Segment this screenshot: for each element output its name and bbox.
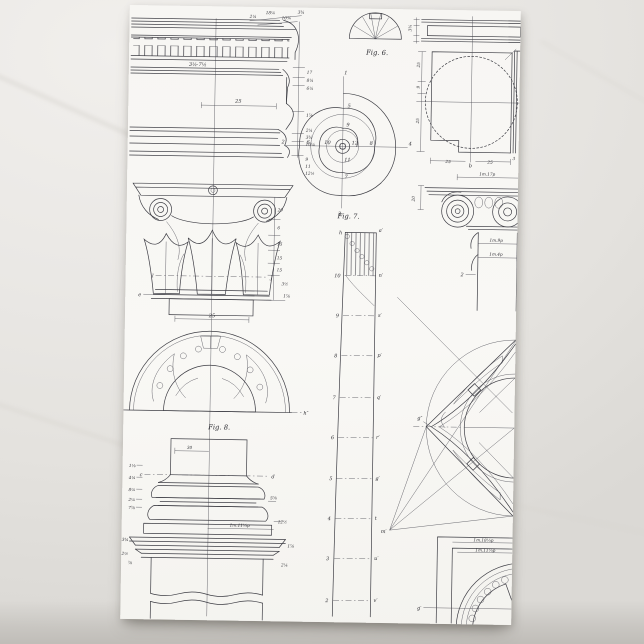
column-base-elevation: 30 c d 1⅛ 4¼ 8¼ 2¼ 7⅞ 5⅝ 12½ 1m. bbox=[120, 438, 296, 621]
dim: 25 bbox=[486, 160, 493, 165]
dim: 1m.18⅓p bbox=[473, 537, 493, 542]
dim: 2½ bbox=[120, 551, 128, 556]
entablature-dimension-stack: 17 8¼ 6¼ 1⅞ 2¼ 3¾ 10¼ 9 11 12½ bbox=[291, 22, 317, 176]
pt: 2 bbox=[280, 139, 284, 145]
rung-letter: r′ bbox=[376, 435, 380, 441]
entasis-diagram: h a′ 10 n′ 9 s′ 8 p′ 7 q′ bbox=[324, 227, 385, 617]
ionic-neck-dim: 1m.9p bbox=[478, 237, 517, 247]
rung-letter: t bbox=[375, 516, 378, 522]
label: g″ bbox=[417, 416, 422, 422]
edge-label-e: e bbox=[138, 292, 165, 298]
dim: 15 bbox=[277, 241, 283, 246]
rung-num: 4 bbox=[327, 516, 331, 522]
guide-left: l bbox=[152, 273, 154, 279]
dim: 8¼ bbox=[307, 78, 314, 83]
capital-guide-line: l J bbox=[152, 273, 274, 281]
rung-letter: u′ bbox=[374, 556, 379, 562]
dim: 3¾ bbox=[122, 537, 129, 542]
pt: 7 bbox=[345, 174, 349, 180]
pt: 1 bbox=[344, 70, 347, 76]
architecture-engraving: 3½·7½ 25 17 8¼ 6¼ 1⅞ 2¼ 3¾ 10¼ 9 11 12½ bbox=[120, 5, 521, 625]
dim: 20 bbox=[411, 196, 416, 203]
corner-label: g″ bbox=[417, 416, 431, 427]
fig6-diagram: Fig. 6. bbox=[349, 12, 402, 57]
rung-num: 2 bbox=[324, 598, 328, 604]
corinthian-capital-plan: m′ g″ bbox=[381, 297, 521, 538]
rung-letter: v′ bbox=[373, 598, 378, 604]
dim: 2¼ bbox=[127, 497, 135, 502]
fig7-label: Fig. 7. bbox=[336, 212, 359, 220]
fig8-label: Fig. 8. bbox=[207, 423, 230, 431]
pt: 11 bbox=[344, 157, 350, 163]
ionic-height-dim: 20 bbox=[411, 185, 424, 209]
dim: 9 bbox=[416, 85, 421, 88]
dim: ⅞ bbox=[128, 560, 133, 565]
guide-right: J bbox=[270, 275, 274, 281]
rung-num: 7 bbox=[332, 395, 336, 401]
dim: 25 bbox=[416, 62, 421, 69]
label: g′ bbox=[417, 606, 422, 612]
top-right-label: a′ bbox=[379, 228, 384, 234]
dim: 1m.9p bbox=[490, 238, 504, 243]
base-module-dim: 1m.11⅓p bbox=[208, 522, 274, 529]
dim: 17 bbox=[307, 70, 313, 75]
dim: 2¼ bbox=[305, 128, 313, 133]
frieze-width: 25 bbox=[234, 99, 241, 105]
soffit-top-dims: 3¾ bbox=[407, 17, 419, 43]
rung-num: 9 bbox=[336, 313, 340, 319]
capital-volute-left bbox=[138, 195, 171, 221]
soffit-plan: 3¾ 25 9 25 25 b 25 3 bbox=[405, 15, 520, 170]
construction-lines: m′ bbox=[381, 297, 517, 537]
ground-label: h″ bbox=[303, 411, 308, 417]
dim: 1⅛ bbox=[129, 463, 137, 468]
top-left-label: h bbox=[339, 230, 342, 236]
dim: 25 bbox=[444, 159, 451, 164]
dim: 12½ bbox=[305, 171, 314, 176]
fig7-volute-spiral: 1 2 3 4 5 6 7 8 9 10 11 12 Fig. 7. bbox=[279, 69, 413, 221]
dim: 6¼ bbox=[307, 86, 314, 91]
pt: 12 bbox=[352, 140, 358, 146]
dim: 1⅞ bbox=[287, 544, 295, 549]
rung-num: 5 bbox=[329, 476, 332, 482]
dim: 2¼ bbox=[280, 562, 288, 567]
stationery-paper: 3½·7½ 25 17 8¼ 6¼ 1⅞ 2¼ 3¾ 10¼ 9 11 12½ bbox=[120, 5, 521, 625]
dim: 12½ bbox=[278, 519, 287, 524]
dentil-band bbox=[133, 37, 289, 58]
right-label: d bbox=[271, 474, 274, 480]
dim: 9 bbox=[305, 157, 308, 162]
label: 2 bbox=[459, 272, 463, 278]
dim: 6 bbox=[277, 225, 280, 230]
dim: 2¼ bbox=[249, 14, 257, 19]
ionic-capital-elevation: 1m.17p 20 1m.9p 1m.4p bbox=[409, 170, 521, 311]
dim: 20 bbox=[277, 207, 284, 212]
flute-band bbox=[345, 232, 376, 275]
marble-vein bbox=[540, 40, 644, 122]
pt: 4 bbox=[408, 141, 412, 147]
base-plan-quarter: 1m.18⅓p 1m.11⅓p g′ bbox=[416, 537, 521, 625]
flute-dim: 30 bbox=[175, 445, 209, 455]
fig8-arch-plan: h″ Fig. 8. bbox=[123, 330, 310, 433]
ionic-width-dim: 1m.17p bbox=[457, 171, 518, 181]
pt: 9 bbox=[346, 122, 350, 128]
dim: 11 bbox=[305, 164, 310, 169]
dim: 1m.17p bbox=[479, 171, 495, 176]
pt: 10 bbox=[324, 140, 331, 146]
product-photo: { "product": { "description": "Stationer… bbox=[0, 0, 644, 644]
dentil-spacing-dim: 3½·7½ bbox=[189, 61, 207, 68]
cd-guide-line: c d bbox=[140, 472, 275, 480]
ionic-label: 2 bbox=[459, 272, 475, 278]
dim: 15 bbox=[277, 267, 283, 272]
half-dome bbox=[163, 365, 256, 412]
rung-letter: g′ bbox=[375, 476, 380, 482]
rung-letter: n′ bbox=[379, 273, 384, 279]
dim: 1m.11⅓p bbox=[230, 523, 250, 528]
dentil-plan-band bbox=[427, 26, 520, 37]
dim: 5⅝ bbox=[270, 495, 278, 500]
pt: 5 bbox=[348, 103, 351, 109]
soffit-bottom-dims: 25 b 25 3 bbox=[430, 155, 515, 170]
base-left-dims: 1⅛ 4¼ 8¼ 2¼ 7⅞ bbox=[127, 463, 142, 510]
center-label: b bbox=[469, 163, 472, 169]
dim: 1⅞ bbox=[283, 293, 291, 298]
dim: 25 bbox=[208, 313, 215, 319]
entablature-elevation: 3½·7½ 25 17 8¼ 6¼ 1⅞ 2¼ 3¾ 10¼ 9 11 12½ bbox=[129, 7, 317, 176]
dim: 8¼ bbox=[128, 487, 135, 492]
dim: 4¼ bbox=[128, 475, 136, 480]
rung-letter: s′ bbox=[378, 313, 383, 319]
corinthian-capital-elevation: l J e 25 20 6 15 15 15 3½ 1⅞ bbox=[131, 183, 293, 323]
dim: 10¾ bbox=[282, 15, 291, 20]
dim: 18¼ bbox=[266, 10, 275, 15]
dim: 3¾ bbox=[407, 25, 412, 32]
dim: 1m.11⅓p bbox=[475, 547, 495, 552]
vertex-label: m′ bbox=[381, 529, 388, 535]
base-plan-dims: 1m.18⅓p 1m.11⅓p bbox=[452, 537, 512, 553]
rung-letter: q′ bbox=[377, 395, 382, 401]
edge-label: e bbox=[138, 292, 141, 298]
dim: 30 bbox=[187, 445, 193, 450]
capital-width-dim: 25 bbox=[175, 313, 249, 323]
dim: 3½ bbox=[281, 281, 288, 286]
ionic-shaft-dim: 1m.4p bbox=[478, 251, 517, 261]
dim: 7⅞ bbox=[128, 505, 136, 510]
rung-num: 10 bbox=[334, 273, 341, 279]
dim: 15 bbox=[277, 255, 283, 260]
dim: 3 bbox=[512, 156, 515, 161]
shaft-flutes-bottom bbox=[170, 439, 247, 476]
dim: 25 bbox=[415, 118, 420, 125]
frieze-dimension: 25 bbox=[201, 98, 276, 109]
fig6-label: Fig. 6. bbox=[365, 49, 388, 57]
rung-letter: p′ bbox=[377, 353, 382, 359]
rung-num: 6 bbox=[331, 435, 335, 441]
base-right-dims: 5⅝ 12½ bbox=[268, 495, 288, 524]
dim: 3¾ bbox=[298, 10, 305, 15]
rung-num: 3 bbox=[326, 556, 329, 562]
rung-num: 8 bbox=[334, 353, 337, 359]
dim: 1m.4p bbox=[489, 252, 503, 257]
pt: 8 bbox=[370, 141, 373, 147]
